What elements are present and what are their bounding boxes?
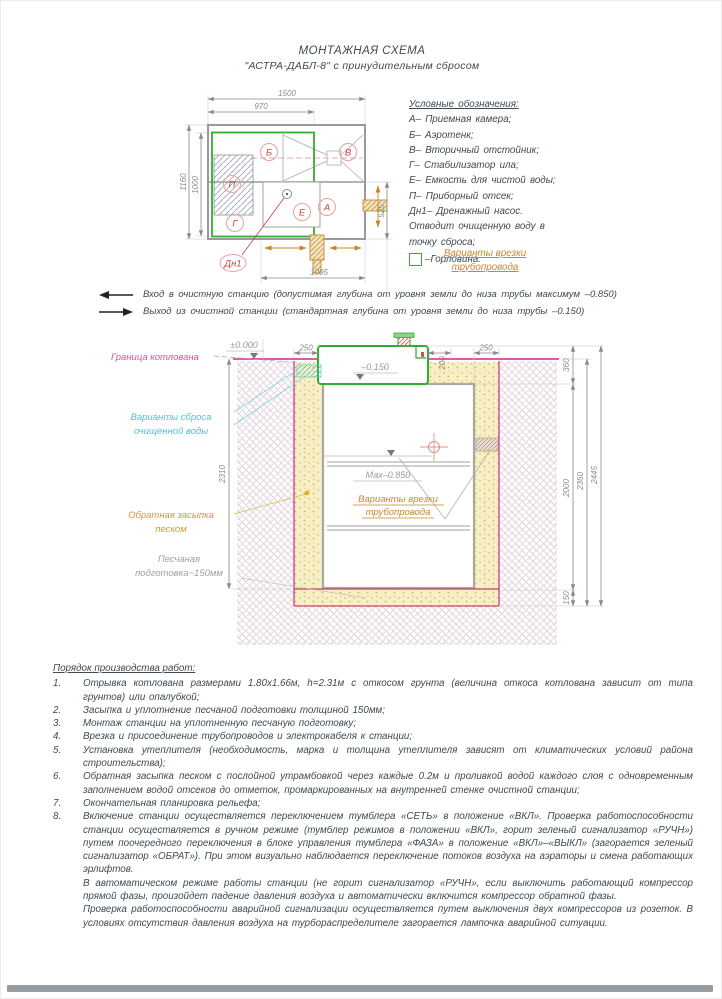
outlet-note-text: Выход из очистной станции (стандартная г…	[143, 306, 584, 317]
tapin-wall-patch	[476, 438, 498, 451]
discharge-pipe-symbol	[297, 365, 321, 377]
dim-right-250: 250	[478, 344, 493, 353]
procedure-item: 4. Врезка и присоединение трубопроводов …	[53, 730, 693, 743]
level-top: –0.150	[360, 362, 389, 372]
plan-tapin-note-line2: трубопровода	[405, 261, 565, 275]
dim-2445: 2445	[590, 466, 599, 485]
plan-clean-water-box	[263, 182, 320, 227]
procedure-item: 1. Отрывка котлована размерами 1.80х1.66…	[53, 677, 693, 704]
legend-item: Г– Стабилизатор ила;	[409, 158, 589, 173]
procedure-item-number: 7.	[53, 797, 83, 810]
procedure-item-text: Врезка и присоединение трубопроводов и э…	[83, 730, 693, 743]
plan-letter-p: П	[229, 180, 236, 191]
outlet-note: Выход из очистной станции (стандартная г…	[99, 306, 679, 317]
procedure-item-number: 3.	[53, 717, 83, 730]
level-max: Мах–0.850	[366, 470, 411, 480]
page-bottom-shadow	[7, 985, 713, 992]
procedure-item-text: Окончательная планировка рельефа;	[83, 797, 693, 810]
procedure-paragraph: В автоматическом режиме работы станции (…	[53, 877, 693, 904]
dim-2360: 2360	[576, 472, 585, 491]
dim-1000: 1000	[191, 176, 200, 194]
legend-item: Дн1– Дренажный насос.	[409, 204, 589, 219]
procedure-item: 8. Включение станции осуществляется пере…	[53, 810, 693, 876]
dim-2000: 2000	[562, 479, 571, 498]
dim-1005: 1005	[310, 268, 328, 277]
procedure-item: 6. Обратная засыпка песком с послойной у…	[53, 770, 693, 797]
legend-item: В– Вторичный отстойник;	[409, 143, 589, 158]
inlet-note-text: Вход в очистную станцию (допустимая глуб…	[143, 289, 617, 300]
drain-pump-dot	[286, 193, 288, 195]
backfill-label-line1: Обратная засыпка	[128, 510, 214, 521]
procedure-paragraph-text: Проверка работоспособности аварийной сиг…	[83, 903, 693, 930]
procedure-item: 5. Установка утеплителя (необходимость, …	[53, 744, 693, 771]
procedure-item-text: Засыпка и уплотнение песчаной подготовки…	[83, 704, 693, 717]
procedure-item-number: 5.	[53, 744, 83, 771]
procedure-item-number: 8.	[53, 810, 83, 876]
procedure-title: Порядок производства работ:	[53, 662, 693, 675]
plan-tapin-note: Варианты врезки трубопровода	[405, 247, 565, 274]
dim-1160: 1160	[179, 173, 188, 191]
pit-boundary-label: Граница котлована	[111, 352, 199, 363]
plan-letter-a: А	[323, 203, 330, 214]
section-tank-body	[323, 384, 474, 588]
discharge-label-line2: очищенной воды	[134, 426, 208, 437]
section-lid	[318, 333, 428, 384]
level-zero: ±0.000	[230, 340, 257, 350]
drawing-sheet: МОНТАЖНАЯ СХЕМА "АСТРА-ДАБЛ-8" с принуди…	[0, 0, 722, 999]
procedure-item-number: 4.	[53, 730, 83, 743]
legend-item: Отводит очищенную воду в	[409, 219, 589, 234]
dim-1500: 1500	[278, 89, 296, 98]
dim-200: 200	[438, 356, 447, 371]
section-tapin-label-line2: трубопровода	[366, 507, 431, 518]
procedure-item-text: Монтаж станции на уплотненную песчаную п…	[83, 717, 693, 730]
procedure-item-text: Установка утеплителя (необходимость, мар…	[83, 744, 693, 771]
procedure-item: 2. Засыпка и уплотнение песчаной подгото…	[53, 704, 693, 717]
procedure-block: Порядок производства работ: 1. Отрывка к…	[53, 662, 693, 930]
procedure-item-text: Обратная засыпка песком с послойной утра…	[83, 770, 693, 797]
legend: Условные обозначения: А– Приемная камера…	[409, 97, 589, 267]
plan-letter-dn1: Дн1	[223, 259, 241, 270]
discharge-label-line1: Варианты сброса	[131, 412, 212, 423]
legend-item: П– Приборный отсек;	[409, 189, 589, 204]
procedure-item: 3. Монтаж станции на уплотненную песчану…	[53, 717, 693, 730]
right-arrow-icon	[99, 307, 133, 317]
plan-letter-e: Е	[299, 208, 306, 219]
legend-item: Б– Аэротенк;	[409, 128, 589, 143]
page-title: МОНТАЖНАЯ СХЕМА	[1, 45, 722, 57]
plan-letter-g: Г	[232, 219, 238, 230]
dim-360: 360	[562, 358, 571, 372]
sand-label-line2: подготовка~150мм	[135, 568, 223, 579]
vent-cap-icon	[394, 333, 414, 338]
sheet-header: МОНТАЖНАЯ СХЕМА "АСТРА-ДАБЛ-8" с принуди…	[1, 45, 722, 72]
procedure-item-number: 1.	[53, 677, 83, 704]
dim-525: 525	[377, 204, 386, 218]
procedure-paragraph-text: В автоматическом режиме работы станции (…	[83, 877, 693, 904]
legend-item: Е– Емкость для чистой воды;	[409, 173, 589, 188]
left-arrow-icon	[99, 290, 133, 300]
inlet-note: Вход в очистную станцию (допустимая глуб…	[99, 289, 679, 300]
backfill-label-line2: песком	[155, 524, 187, 535]
sand-label-line1: Песчаная	[158, 554, 200, 565]
legend-item: А– Приемная камера;	[409, 112, 589, 127]
dim-2310: 2310	[218, 465, 227, 484]
procedure-item-text: Включение станции осуществляется переклю…	[83, 810, 693, 876]
plan-letter-v: В	[345, 148, 352, 159]
section-tapin-label-line1: Варианты врезки	[358, 494, 439, 505]
legend-title: Условные обозначения:	[409, 97, 589, 112]
procedure-item: 7. Окончательная планировка рельефа;	[53, 797, 693, 810]
plan-tapin-note-line1: Варианты врезки	[405, 247, 565, 261]
procedure-item-text: Отрывка котлована размерами 1.80х1.66м, …	[83, 677, 693, 704]
plan-view-drawing: Б В П Г Е А Дн1 1500 970 1160 1000 525 1…	[96, 86, 401, 291]
backfill-dot	[305, 491, 310, 496]
dim-150: 150	[562, 591, 571, 605]
dim-left-250: 250	[298, 344, 313, 353]
plan-letter-b: Б	[266, 148, 272, 159]
procedure-item-number: 2.	[53, 704, 83, 717]
procedure-paragraph: Проверка работоспособности аварийной сиг…	[53, 903, 693, 930]
cross-section-drawing: ±0.000 –0.150 Мах–0.850 Граница котлован…	[101, 326, 641, 666]
page-subtitle: "АСТРА-ДАБЛ-8" с принудительным сбросом	[1, 60, 722, 72]
dim-970: 970	[254, 102, 268, 111]
procedure-item-number: 6.	[53, 770, 83, 797]
